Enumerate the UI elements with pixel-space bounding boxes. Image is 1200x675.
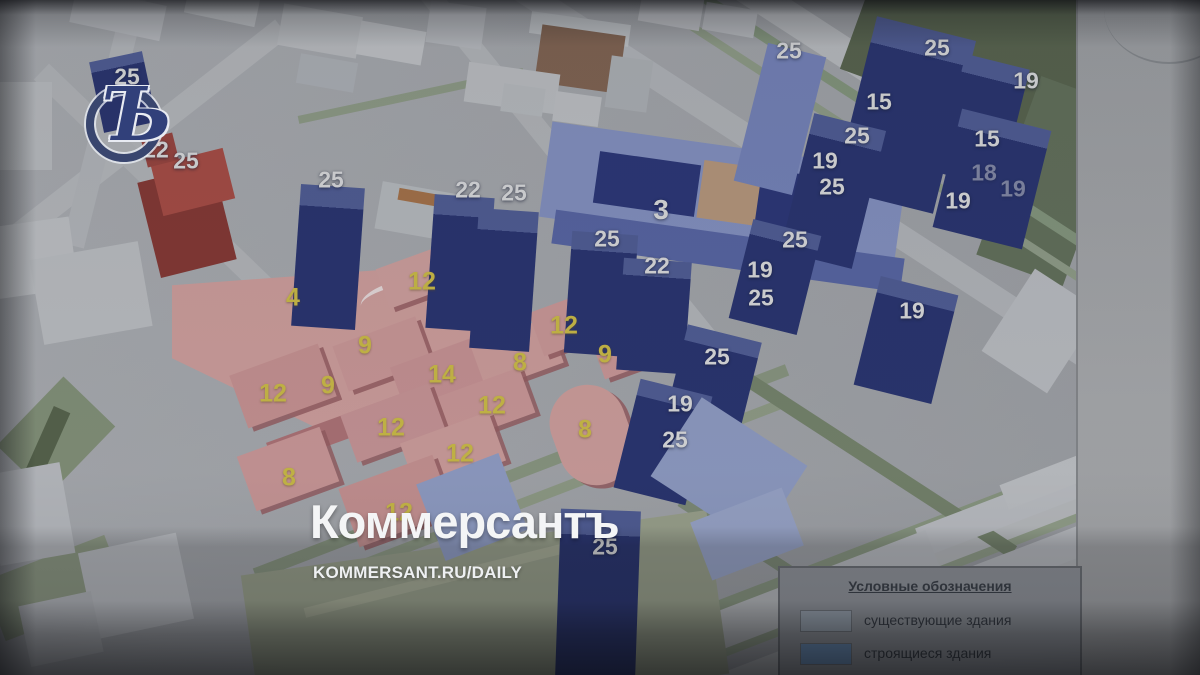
building-height-label: 19 xyxy=(899,300,925,323)
building-height-label: 8 xyxy=(513,351,527,376)
building-height-label: 19 xyxy=(667,393,693,416)
building-height-label: 18 xyxy=(971,162,997,185)
building-height-label: 8 xyxy=(282,466,296,491)
building-height-label: 19 xyxy=(812,150,838,173)
building-height-label: 25 xyxy=(594,228,620,251)
map-legend: Условные обозначения существующие здания… xyxy=(778,566,1082,675)
building-height-label: 25 xyxy=(592,536,618,559)
building-height-label: 4 xyxy=(286,286,300,311)
building-height-label: 19 xyxy=(1013,70,1039,93)
building-height-label: 12 xyxy=(408,270,436,295)
legend-label-existing: существующие здания xyxy=(864,612,1011,628)
legend-swatch-construction xyxy=(800,643,852,665)
building-height-label: 12 xyxy=(446,442,474,467)
building-height-label: 12 xyxy=(385,501,413,526)
building-height-label: 25 xyxy=(819,176,845,199)
building-height-label: 22 xyxy=(143,139,169,162)
building-height-label: 12 xyxy=(478,394,506,419)
building-height-label: 12 xyxy=(259,382,287,407)
legend-title: Условные обозначения xyxy=(780,578,1080,594)
building-height-label: 9 xyxy=(358,334,372,359)
building-height-label: 15 xyxy=(974,128,1000,151)
building-height-label: 19 xyxy=(1000,178,1026,201)
building-height-label: 3 xyxy=(653,196,669,224)
building-height-label: 22 xyxy=(455,179,481,202)
legend-item-construction: строящиеся здания xyxy=(780,643,1080,665)
building-height-label: 9 xyxy=(598,343,612,368)
building-height-label: 25 xyxy=(173,150,199,173)
building-height-label: 25 xyxy=(114,66,140,89)
building-height-label: 25 xyxy=(782,229,808,252)
legend-label-construction: строящиеся здания xyxy=(864,645,991,661)
building-height-label: 15 xyxy=(866,91,892,114)
building-height-label: 25 xyxy=(748,287,774,310)
building-height-label: 25 xyxy=(776,40,802,63)
building-height-label: 14 xyxy=(428,363,456,388)
building-height-label: 25 xyxy=(924,37,950,60)
building-height-label: 25 xyxy=(662,429,688,452)
building-height-label: 22 xyxy=(644,255,670,278)
building-height-label: 19 xyxy=(747,259,773,282)
photo-of-masterplan: 2522252522253252225251525192519151819192… xyxy=(0,0,1200,675)
legend-swatch-existing xyxy=(800,610,852,632)
building-height-label: 25 xyxy=(318,169,344,192)
building-height-label: 12 xyxy=(377,416,405,441)
building-height-label: 12 xyxy=(550,314,578,339)
building-height-label: 25 xyxy=(501,182,527,205)
building-height-label: 25 xyxy=(704,346,730,369)
building-height-label: 25 xyxy=(844,125,870,148)
building-height-label: 19 xyxy=(945,190,971,213)
building-height-label: 8 xyxy=(578,418,592,443)
legend-item-existing: существующие здания xyxy=(780,610,1080,632)
building-height-label: 9 xyxy=(321,374,335,399)
